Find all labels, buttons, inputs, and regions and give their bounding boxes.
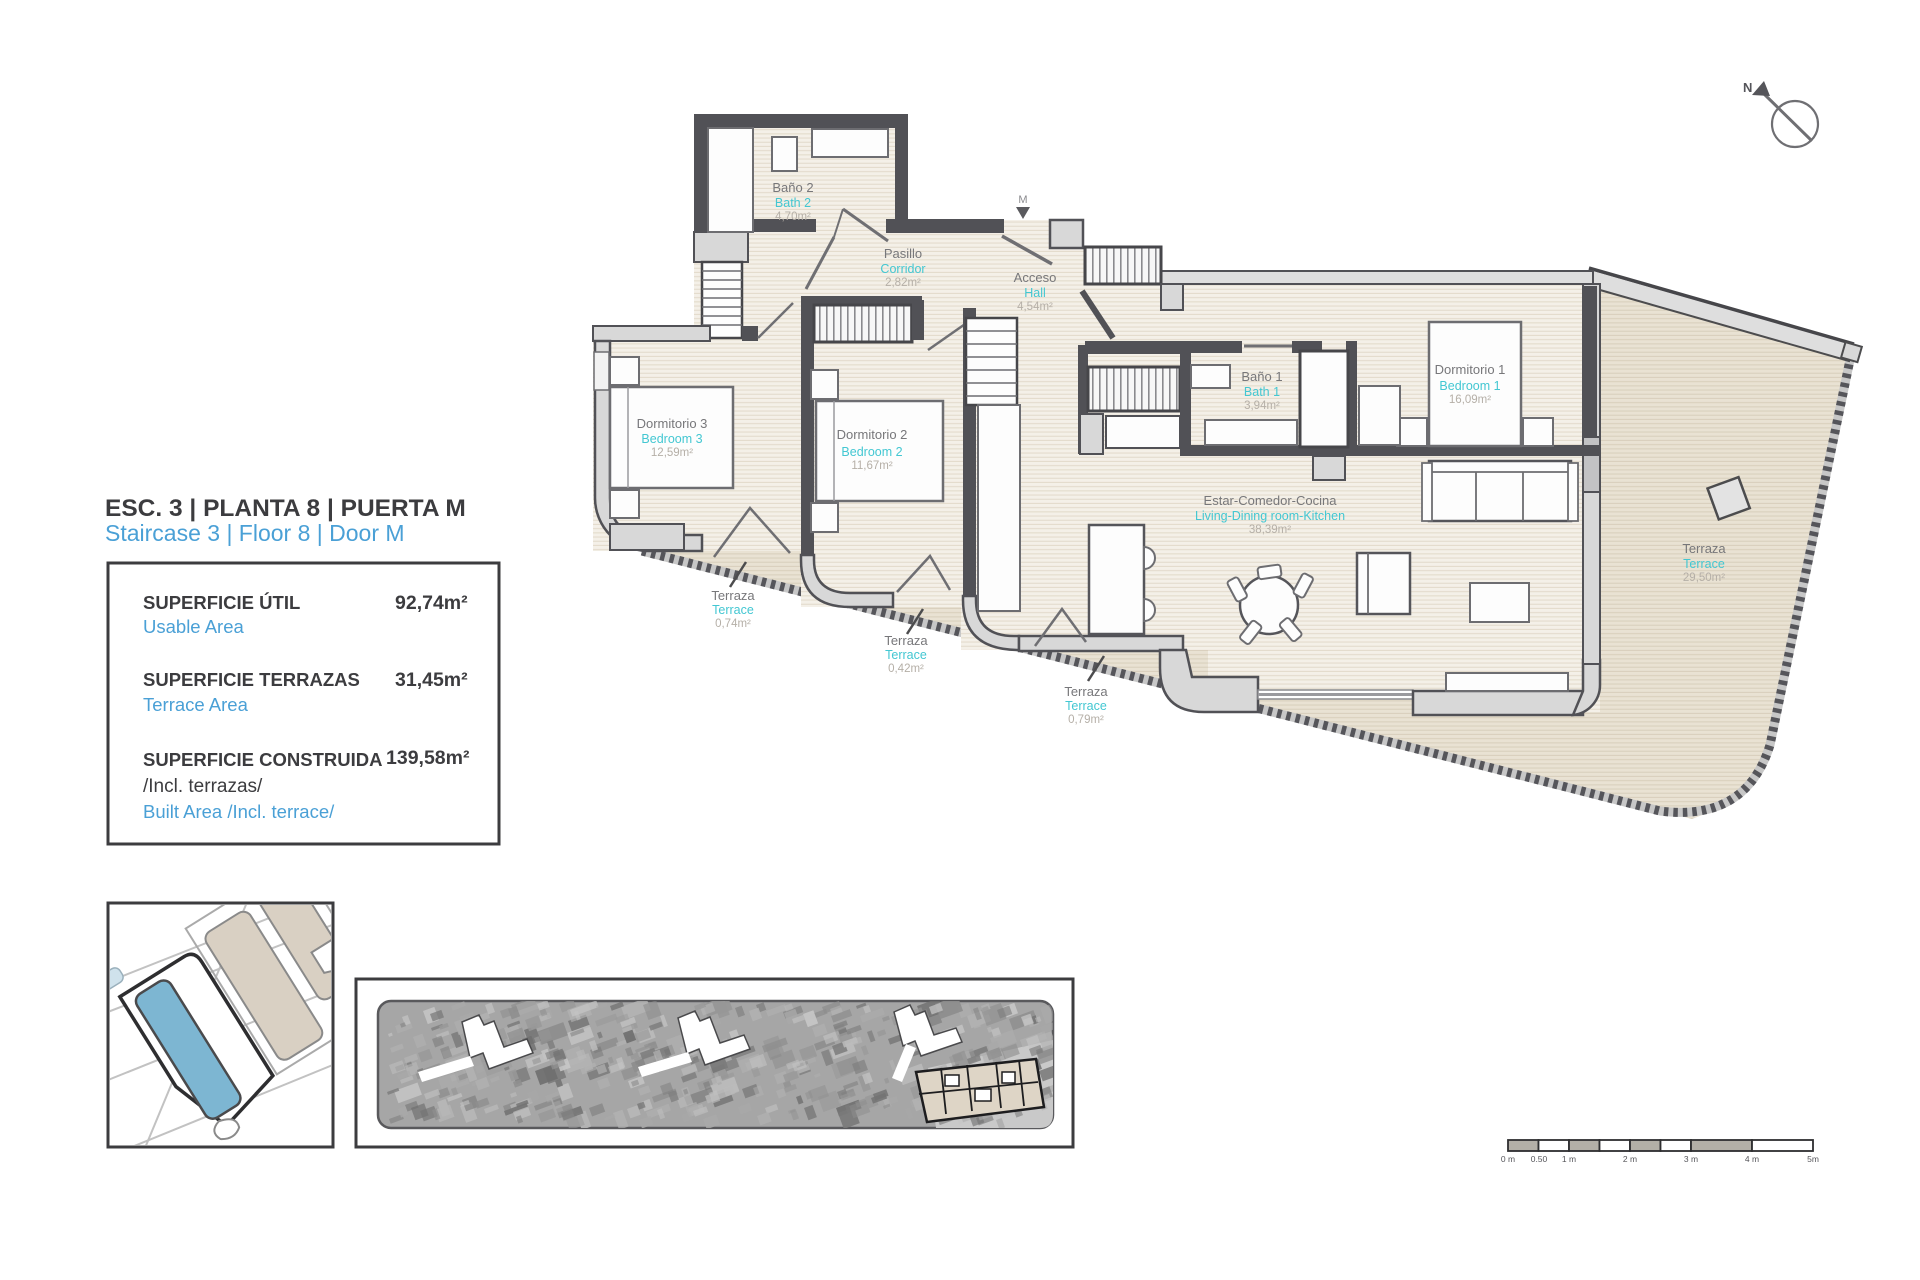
svg-text:Bedroom 2: Bedroom 2 xyxy=(841,445,902,459)
svg-text:Baño 2: Baño 2 xyxy=(772,180,813,195)
svg-text:Terrace: Terrace xyxy=(885,648,927,662)
svg-text:3 m: 3 m xyxy=(1684,1154,1698,1164)
svg-text:12,59m²: 12,59m² xyxy=(651,447,693,459)
svg-text:Hall: Hall xyxy=(1024,286,1046,300)
svg-text:4,70m²: 4,70m² xyxy=(775,211,811,223)
svg-text:Terraza: Terraza xyxy=(884,633,928,648)
svg-text:Estar-Comedor-Cocina: Estar-Comedor-Cocina xyxy=(1204,493,1338,508)
svg-text:Baño 1: Baño 1 xyxy=(1241,369,1282,384)
svg-text:0,79m²: 0,79m² xyxy=(1068,714,1104,726)
svg-text:16,09m²: 16,09m² xyxy=(1449,394,1491,406)
svg-text:Bedroom 3: Bedroom 3 xyxy=(641,432,702,446)
svg-text:M: M xyxy=(1018,194,1027,206)
svg-text:Bedroom 1: Bedroom 1 xyxy=(1439,379,1500,393)
svg-text:SUPERFICIE TERRAZAS: SUPERFICIE TERRAZAS xyxy=(143,669,360,690)
svg-text:4 m: 4 m xyxy=(1745,1154,1759,1164)
svg-text:0,74m²: 0,74m² xyxy=(715,618,751,630)
svg-text:N: N xyxy=(1743,80,1752,95)
svg-text:Terraza: Terraza xyxy=(711,588,755,603)
svg-text:Bath 1: Bath 1 xyxy=(1244,385,1280,399)
svg-text:4,54m²: 4,54m² xyxy=(1017,301,1053,313)
svg-text:Terrace: Terrace xyxy=(712,603,754,617)
svg-text:Dormitorio 3: Dormitorio 3 xyxy=(637,416,708,431)
svg-text:92,74m²: 92,74m² xyxy=(395,592,468,614)
svg-text:3,94m²: 3,94m² xyxy=(1244,400,1280,412)
svg-text:0.50: 0.50 xyxy=(1531,1154,1548,1164)
svg-text:139,58m²: 139,58m² xyxy=(386,747,470,769)
svg-text:Corridor: Corridor xyxy=(880,262,925,276)
svg-text:Dormitorio 2: Dormitorio 2 xyxy=(837,427,908,442)
svg-text:Dormitorio 1: Dormitorio 1 xyxy=(1435,362,1506,377)
svg-text:Terraza: Terraza xyxy=(1682,541,1726,556)
svg-text:Acceso: Acceso xyxy=(1014,270,1057,285)
svg-text:Pasillo: Pasillo xyxy=(884,246,922,261)
svg-text:Terrace Area: Terrace Area xyxy=(143,694,249,715)
svg-text:31,45m²: 31,45m² xyxy=(395,669,468,691)
svg-text:2 m: 2 m xyxy=(1623,1154,1637,1164)
svg-text:29,50m²: 29,50m² xyxy=(1683,572,1725,584)
svg-text:/Incl. terrazas/: /Incl. terrazas/ xyxy=(143,776,263,797)
svg-text:0 m: 0 m xyxy=(1501,1154,1515,1164)
svg-text:0,42m²: 0,42m² xyxy=(888,663,924,675)
svg-text:Staircase 3 | Floor 8 | Door M: Staircase 3 | Floor 8 | Door M xyxy=(105,520,405,546)
svg-text:1 m: 1 m xyxy=(1562,1154,1576,1164)
svg-text:38,39m²: 38,39m² xyxy=(1249,524,1291,536)
svg-text:Usable Area: Usable Area xyxy=(143,616,244,637)
svg-text:2,82m²: 2,82m² xyxy=(885,277,921,289)
svg-text:Terraza: Terraza xyxy=(1064,684,1108,699)
svg-text:SUPERFICIE ÚTIL: SUPERFICIE ÚTIL xyxy=(143,592,300,613)
svg-text:Terrace: Terrace xyxy=(1683,557,1725,571)
svg-text:Built Area /Incl. terrace/: Built Area /Incl. terrace/ xyxy=(143,801,335,822)
svg-text:Terrace: Terrace xyxy=(1065,699,1107,713)
svg-text:Bath 2: Bath 2 xyxy=(775,196,811,210)
svg-text:ESC. 3 | PLANTA 8 | PUERTA M: ESC. 3 | PLANTA 8 | PUERTA M xyxy=(105,495,466,522)
svg-text:SUPERFICIE CONSTRUIDA: SUPERFICIE CONSTRUIDA xyxy=(143,749,383,770)
svg-text:Living-Dining room-Kitchen: Living-Dining room-Kitchen xyxy=(1195,509,1345,523)
svg-text:5m: 5m xyxy=(1807,1154,1819,1164)
svg-text:11,67m²: 11,67m² xyxy=(851,460,893,472)
